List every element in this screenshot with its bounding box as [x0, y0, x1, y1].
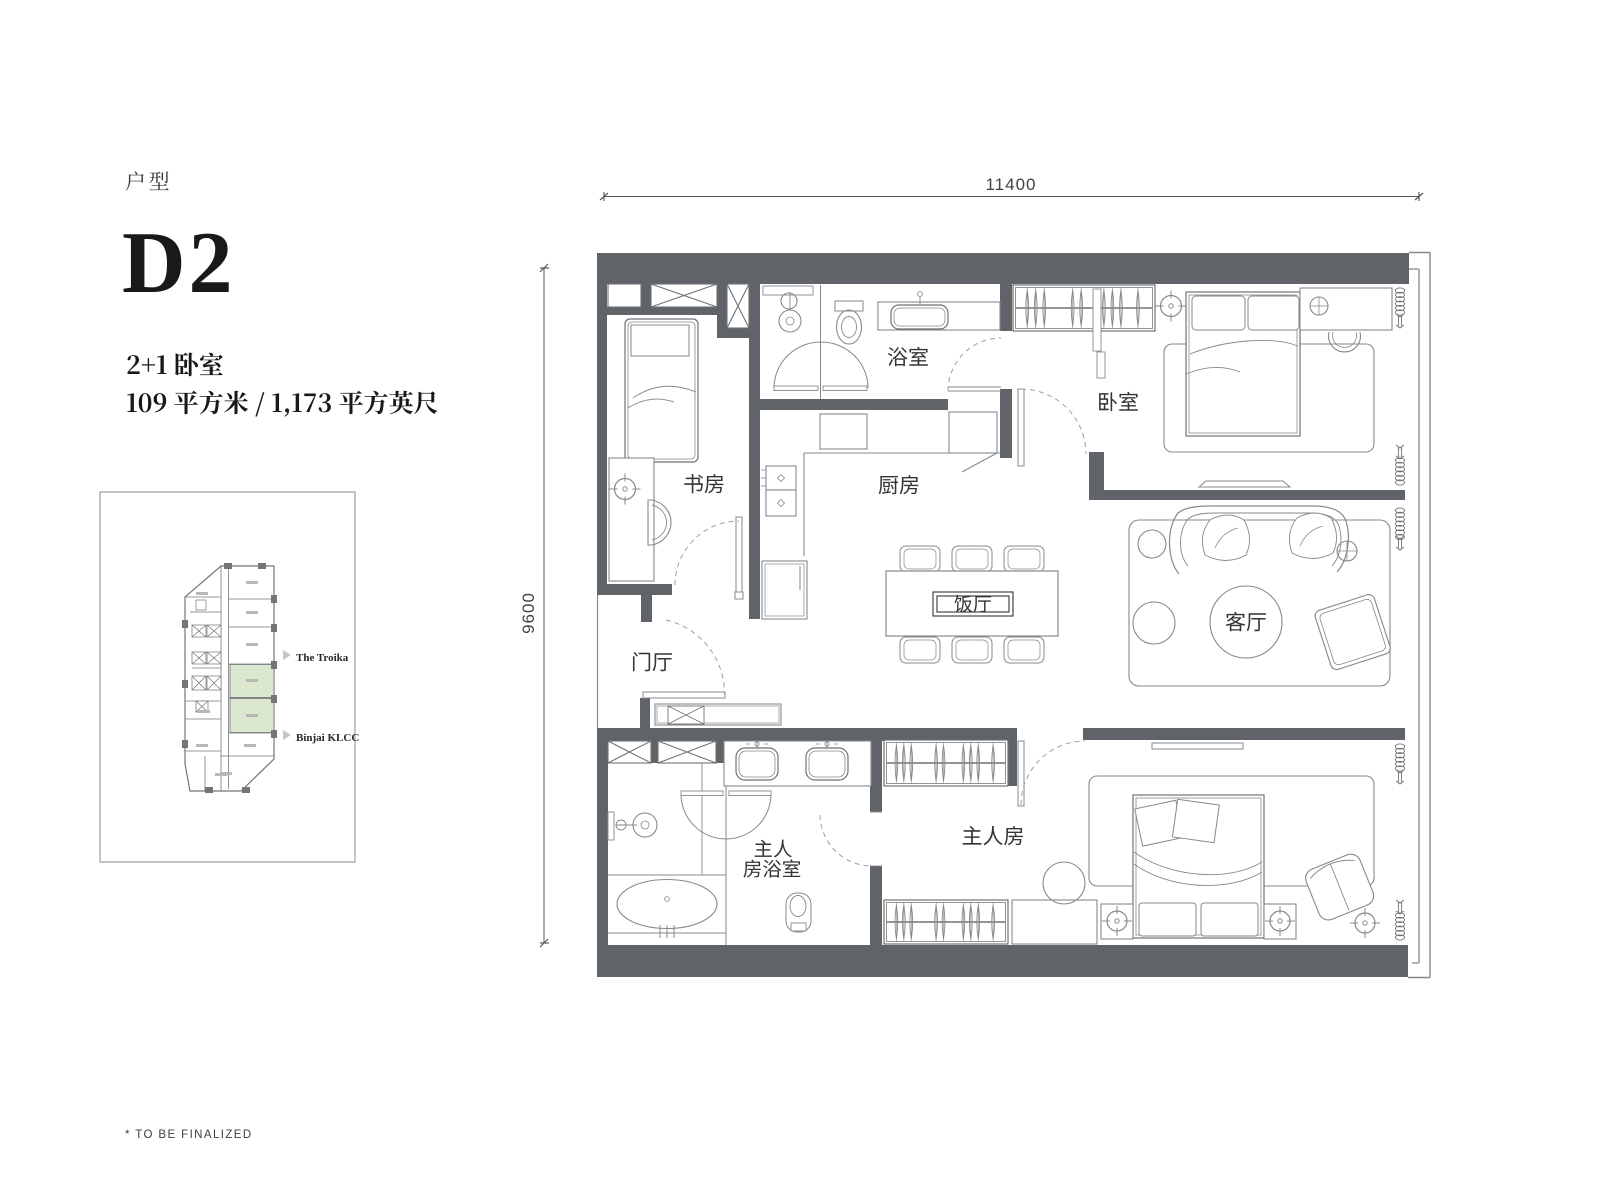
svg-text:D2: D2 — [122, 215, 236, 312]
svg-text:Binjai KLCC: Binjai KLCC — [296, 732, 359, 744]
svg-text:11400: 11400 — [985, 175, 1036, 194]
svg-text:* TO BE FINALIZED: * TO BE FINALIZED — [125, 1129, 253, 1141]
svg-text:9600: 9600 — [519, 592, 538, 634]
svg-text:The Troika: The Troika — [296, 652, 349, 664]
